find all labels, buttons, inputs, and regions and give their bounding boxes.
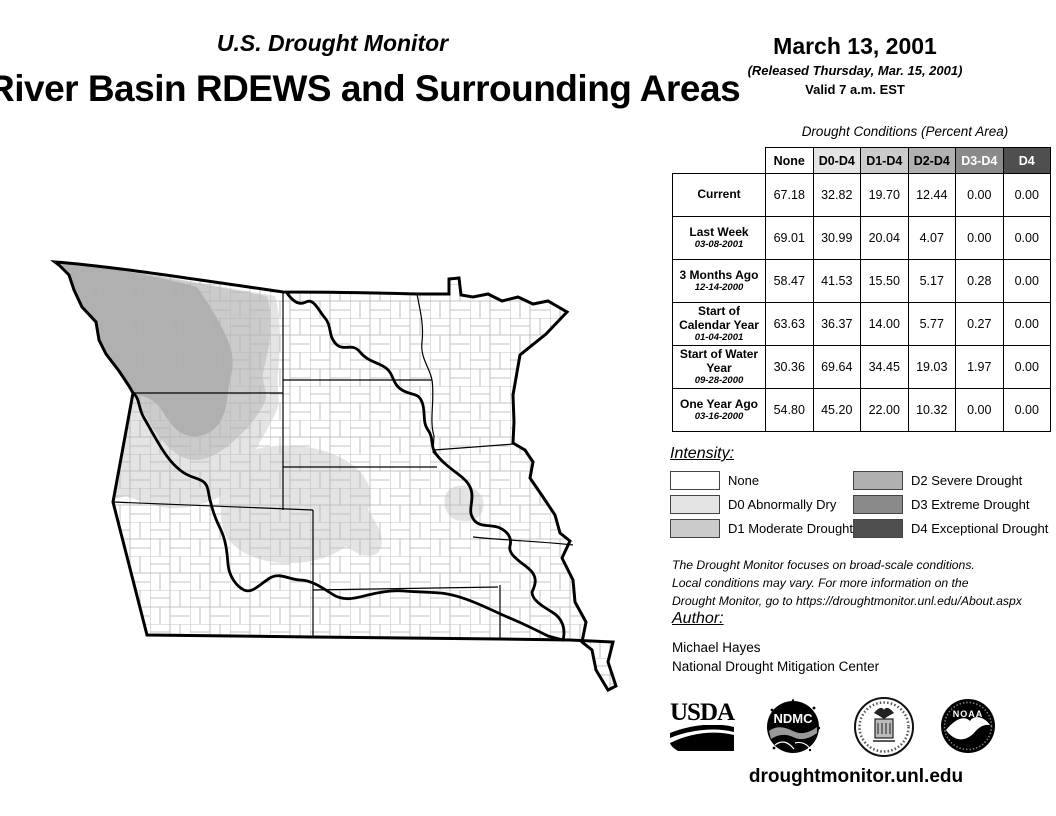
noaa-logo-icon: NOAA xyxy=(938,696,998,756)
legend-title: Intensity: xyxy=(670,445,734,463)
legend-swatch xyxy=(853,495,903,514)
legend-swatch xyxy=(670,495,720,514)
value-cell: 20.04 xyxy=(861,217,909,260)
legend-label: D0 Abnormally Dry xyxy=(728,497,836,512)
value-cell: 69.01 xyxy=(766,217,814,260)
table-row: One Year Ago03-16-200054.8045.2022.0010.… xyxy=(673,389,1051,432)
drought-map xyxy=(30,250,670,700)
ndmc-logo-icon: NDMC xyxy=(764,698,822,756)
column-header-d1-d4: D1-D4 xyxy=(861,148,909,174)
value-cell: 0.00 xyxy=(1003,174,1051,217)
legend-label: None xyxy=(728,473,759,488)
legend-swatch xyxy=(853,471,903,490)
value-cell: 12.44 xyxy=(908,174,956,217)
usda-logo: USDA xyxy=(670,700,734,752)
row-label-cell: One Year Ago03-16-2000 xyxy=(673,389,766,432)
column-header-d0-d4: D0-D4 xyxy=(813,148,861,174)
value-cell: 0.28 xyxy=(956,260,1004,303)
table-row: Last Week03-08-200169.0130.9920.044.070.… xyxy=(673,217,1051,260)
value-cell: 0.00 xyxy=(956,174,1004,217)
drought-conditions-table: NoneD0-D4D1-D4D2-D4D3-D4D4 Current67.183… xyxy=(672,147,1051,432)
row-label-cell: Start of Calendar Year01-04-2001 xyxy=(673,303,766,346)
county-grid xyxy=(30,250,670,700)
value-cell: 0.00 xyxy=(1003,217,1051,260)
value-cell: 58.47 xyxy=(766,260,814,303)
value-cell: 0.00 xyxy=(1003,346,1051,389)
site-url[interactable]: droughtmonitor.unl.edu xyxy=(700,766,1012,788)
legend-item: D4 Exceptional Drought xyxy=(853,516,1048,540)
value-cell: 34.45 xyxy=(861,346,909,389)
table-title: Drought Conditions (Percent Area) xyxy=(760,124,1050,139)
value-cell: 19.70 xyxy=(861,174,909,217)
column-header-d4: D4 xyxy=(1003,148,1051,174)
table-row: 3 Months Ago12-14-200058.4741.5315.505.1… xyxy=(673,260,1051,303)
value-cell: 5.17 xyxy=(908,260,956,303)
commerce-seal-logo xyxy=(853,696,915,763)
value-cell: 0.27 xyxy=(956,303,1004,346)
value-cell: 0.00 xyxy=(956,389,1004,432)
table-row: Start of Water Year09-28-200030.3669.643… xyxy=(673,346,1051,389)
value-cell: 41.53 xyxy=(813,260,861,303)
value-cell: 5.77 xyxy=(908,303,956,346)
value-cell: 22.00 xyxy=(861,389,909,432)
legend-item: D3 Extreme Drought xyxy=(853,492,1048,516)
usda-logo-text: USDA xyxy=(670,700,734,725)
author-name: Michael Hayes xyxy=(672,640,761,655)
value-cell: 15.50 xyxy=(861,260,909,303)
release-date: (Released Thursday, Mar. 15, 2001) xyxy=(700,63,1010,78)
table-header: NoneD0-D4D1-D4D2-D4D3-D4D4 xyxy=(673,148,1051,174)
value-cell: 67.18 xyxy=(766,174,814,217)
value-cell: 0.00 xyxy=(956,217,1004,260)
table-corner-cell xyxy=(673,148,766,174)
date-block: March 13, 2001 (Released Thursday, Mar. … xyxy=(700,33,1010,97)
value-cell: 30.99 xyxy=(813,217,861,260)
value-cell: 32.82 xyxy=(813,174,861,217)
legend-swatch xyxy=(853,519,903,538)
page-title: River Basin RDEWS and Surrounding Areas xyxy=(0,68,740,110)
legend-label: D2 Severe Drought xyxy=(911,473,1022,488)
value-cell: 14.00 xyxy=(861,303,909,346)
d0-region-bootheel-2 xyxy=(586,662,594,670)
valid-time: Valid 7 a.m. EST xyxy=(700,82,1010,97)
legend-item: D0 Abnormally Dry xyxy=(670,492,853,516)
value-cell: 10.32 xyxy=(908,389,956,432)
noaa-logo: NOAA xyxy=(938,696,998,761)
disclaimer-text: The Drought Monitor focuses on broad-sca… xyxy=(672,556,1056,610)
value-cell: 4.07 xyxy=(908,217,956,260)
legend-item: None xyxy=(670,468,853,492)
column-header-d3-d4: D3-D4 xyxy=(956,148,1004,174)
legend-label: D4 Exceptional Drought xyxy=(911,521,1048,536)
column-header-d2-d4: D2-D4 xyxy=(908,148,956,174)
value-cell: 69.64 xyxy=(813,346,861,389)
value-cell: 54.80 xyxy=(766,389,814,432)
legend-swatch xyxy=(670,519,720,538)
value-cell: 0.00 xyxy=(1003,389,1051,432)
table-body: Current67.1832.8219.7012.440.000.00Last … xyxy=(673,174,1051,432)
value-cell: 1.97 xyxy=(956,346,1004,389)
table-row: Current67.1832.8219.7012.440.000.00 xyxy=(673,174,1051,217)
usda-swoosh-icon xyxy=(670,725,734,751)
ndmc-logo-text: NDMC xyxy=(774,711,814,726)
author-title: Author: xyxy=(672,610,724,628)
legend-label: D3 Extreme Drought xyxy=(911,497,1030,512)
row-label-cell: Current xyxy=(673,174,766,217)
value-cell: 36.37 xyxy=(813,303,861,346)
commerce-seal-icon xyxy=(853,696,915,758)
value-cell: 19.03 xyxy=(908,346,956,389)
map-date: March 13, 2001 xyxy=(700,33,1010,60)
row-label-cell: Last Week03-08-2001 xyxy=(673,217,766,260)
row-label-cell: 3 Months Ago12-14-2000 xyxy=(673,260,766,303)
legend-label: D1 Moderate Drought xyxy=(728,521,853,536)
ndmc-logo: NDMC xyxy=(764,698,822,761)
author-organization: National Drought Mitigation Center xyxy=(672,659,879,674)
value-cell: 0.00 xyxy=(1003,260,1051,303)
value-cell: 30.36 xyxy=(766,346,814,389)
basin-map-svg xyxy=(30,250,670,700)
value-cell: 0.00 xyxy=(1003,303,1051,346)
row-label-cell: Start of Water Year09-28-2000 xyxy=(673,346,766,389)
monitor-title: U.S. Drought Monitor xyxy=(160,30,505,57)
legend-item: D1 Moderate Drought xyxy=(670,516,853,540)
legend-item: D2 Severe Drought xyxy=(853,468,1048,492)
value-cell: 45.20 xyxy=(813,389,861,432)
table-row: Start of Calendar Year01-04-200163.6336.… xyxy=(673,303,1051,346)
value-cell: 63.63 xyxy=(766,303,814,346)
column-header-none: None xyxy=(766,148,814,174)
intensity-legend: NoneD0 Abnormally DryD1 Moderate Drought… xyxy=(670,468,1048,540)
legend-swatch xyxy=(670,471,720,490)
